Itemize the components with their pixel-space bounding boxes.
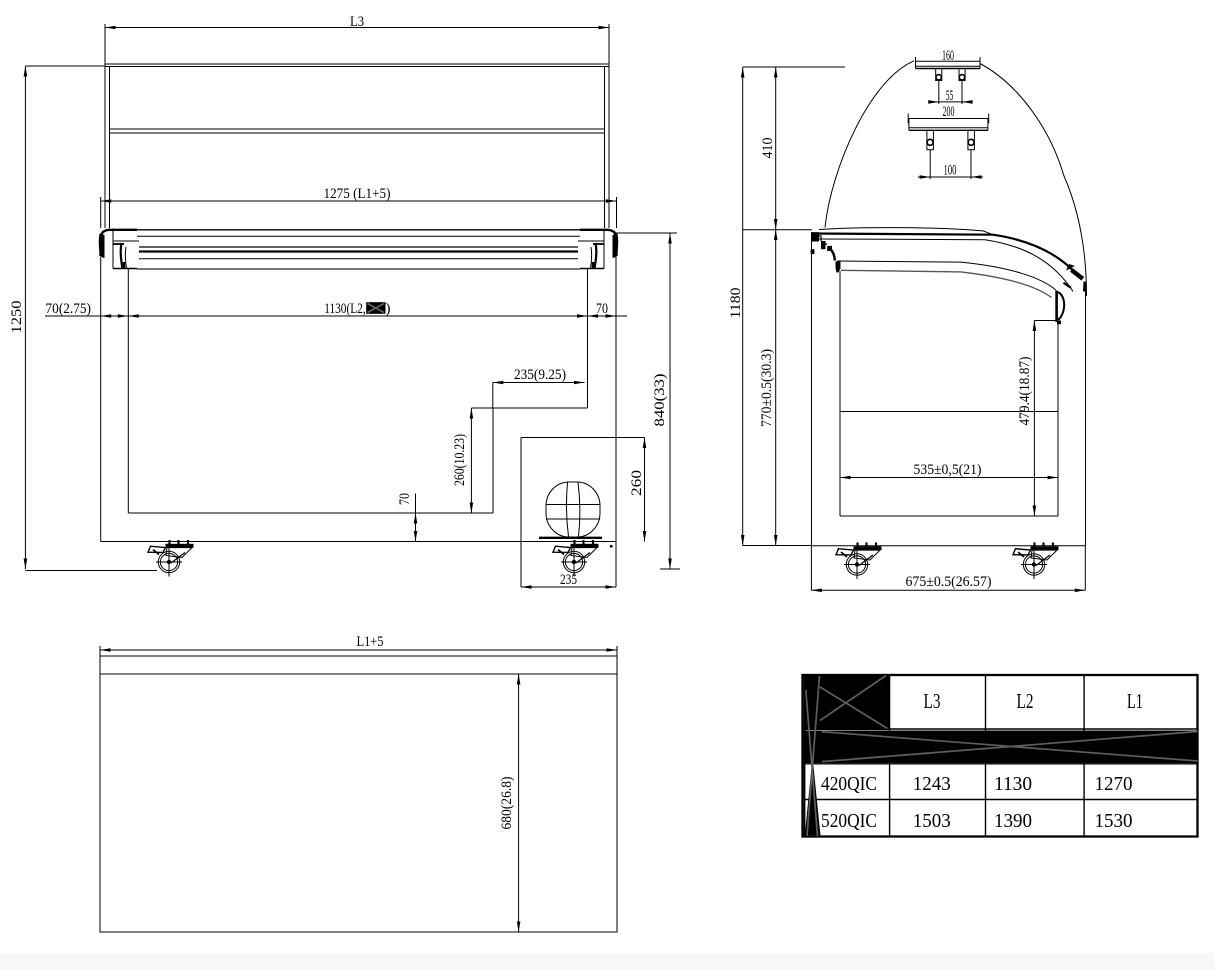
svg-text:675±0.5(26.57): 675±0.5(26.57) (906, 574, 992, 590)
svg-text:260(10.23): 260(10.23) (452, 434, 468, 486)
svg-text:479.4(18.87): 479.4(18.87) (1017, 357, 1033, 426)
svg-text:1270: 1270 (1095, 773, 1133, 795)
svg-text:680(26.8): 680(26.8) (499, 777, 515, 830)
svg-text:L2: L2 (1017, 689, 1034, 713)
svg-text:770±0.5(30.3): 770±0.5(30.3) (759, 349, 775, 427)
svg-text:840(33): 840(33) (652, 374, 668, 427)
svg-text:420QIC: 420QIC (821, 773, 877, 795)
svg-text:100: 100 (944, 163, 957, 179)
svg-text:1503: 1503 (913, 810, 951, 832)
svg-text:520QIC: 520QIC (821, 810, 877, 832)
svg-text:): ) (386, 301, 391, 317)
svg-text:1530: 1530 (1095, 810, 1133, 832)
svg-text:70: 70 (596, 301, 608, 317)
svg-text:1250: 1250 (9, 301, 25, 334)
svg-text:200: 200 (943, 104, 955, 120)
svg-text:260: 260 (629, 470, 645, 496)
svg-text:70(2.75): 70(2.75) (46, 301, 92, 317)
svg-text:410: 410 (760, 138, 776, 159)
svg-text:L3: L3 (924, 689, 941, 713)
svg-text:1130: 1130 (994, 773, 1032, 795)
svg-text:L1+5: L1+5 (357, 634, 384, 650)
svg-text:70: 70 (397, 493, 413, 505)
svg-text:1130(L2,: 1130(L2, (324, 301, 366, 317)
svg-text:1275 (L1+5): 1275 (L1+5) (324, 186, 391, 202)
svg-text:235(9.25): 235(9.25) (514, 367, 566, 383)
svg-text:1180: 1180 (728, 288, 744, 319)
svg-text:1243: 1243 (913, 773, 951, 795)
svg-text:L1: L1 (1127, 689, 1143, 713)
svg-text:1390: 1390 (994, 810, 1032, 832)
svg-text:535±0,5(21): 535±0,5(21) (914, 462, 982, 478)
